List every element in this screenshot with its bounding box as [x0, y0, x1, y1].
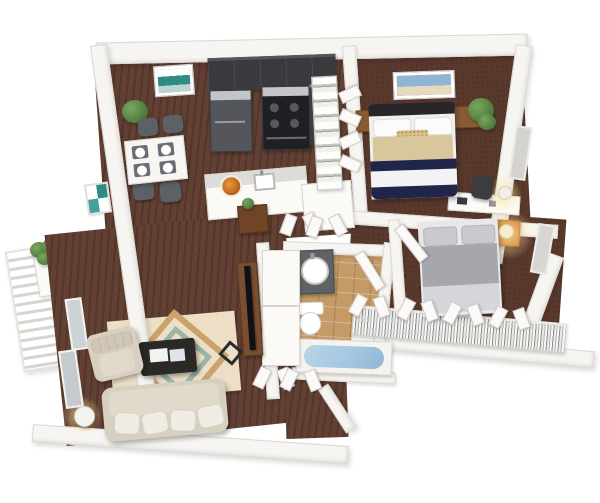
sofa-pillow	[170, 409, 197, 432]
refrigerator	[209, 90, 252, 153]
closet-bifold-doors	[338, 92, 358, 120]
console-plant	[242, 198, 254, 209]
oven-door-line	[266, 137, 306, 140]
closet-bifold-doors	[355, 293, 384, 315]
pillow	[461, 224, 496, 245]
range-oven	[261, 86, 310, 151]
place-setting	[157, 142, 174, 157]
wall-art-beach	[394, 71, 455, 99]
refrigerator-top	[210, 91, 250, 101]
wall-art-teal-landscape	[154, 65, 194, 97]
closet-bifold-doors	[287, 368, 316, 389]
master-bed	[368, 102, 457, 200]
pillow	[423, 226, 458, 247]
sink-faucet	[260, 170, 263, 175]
office-chair	[470, 174, 495, 200]
dining-chair	[162, 114, 184, 134]
refrigerator-handle	[215, 121, 245, 124]
magazine	[149, 348, 168, 363]
sofa-pillow	[196, 402, 226, 429]
burner	[290, 119, 299, 128]
floor-plan-scene	[0, 0, 600, 503]
desk-lamp	[498, 186, 512, 200]
dining-chair	[137, 117, 159, 137]
dining-table	[124, 135, 188, 185]
round-sink	[300, 256, 329, 285]
table-lamp-lit	[499, 224, 514, 239]
white-stripe	[371, 168, 458, 187]
bathtub-water	[304, 345, 385, 370]
burner	[270, 119, 279, 128]
side-table	[74, 406, 95, 427]
sofa	[101, 378, 229, 443]
dining-chair	[159, 181, 182, 203]
storage-closet	[262, 250, 300, 306]
closet-bifold-doors	[338, 138, 358, 166]
wall-art-teal-grid	[84, 181, 112, 215]
place-setting	[133, 163, 150, 178]
desk-item	[457, 197, 467, 205]
kitchen-sink	[253, 172, 275, 191]
closet-bifold-doors	[449, 301, 478, 323]
sofa-pillow	[113, 412, 140, 435]
gray-blanket	[421, 243, 499, 289]
faucet	[310, 253, 314, 259]
burner	[290, 103, 299, 112]
place-setting	[131, 145, 148, 160]
console-table	[237, 204, 269, 234]
place-setting	[159, 160, 176, 175]
toilet-bowl	[299, 312, 322, 336]
hall-bifold-doors	[311, 213, 340, 235]
range-control-panel	[262, 87, 308, 97]
burner	[270, 103, 279, 112]
magazine	[169, 349, 185, 362]
closet-bifold-doors	[495, 305, 524, 327]
storage-closet	[262, 306, 300, 366]
master-plant	[478, 114, 496, 130]
sofa-pillow	[140, 410, 170, 437]
closet-bifold-doors	[403, 297, 432, 319]
coffee-table	[139, 338, 198, 377]
